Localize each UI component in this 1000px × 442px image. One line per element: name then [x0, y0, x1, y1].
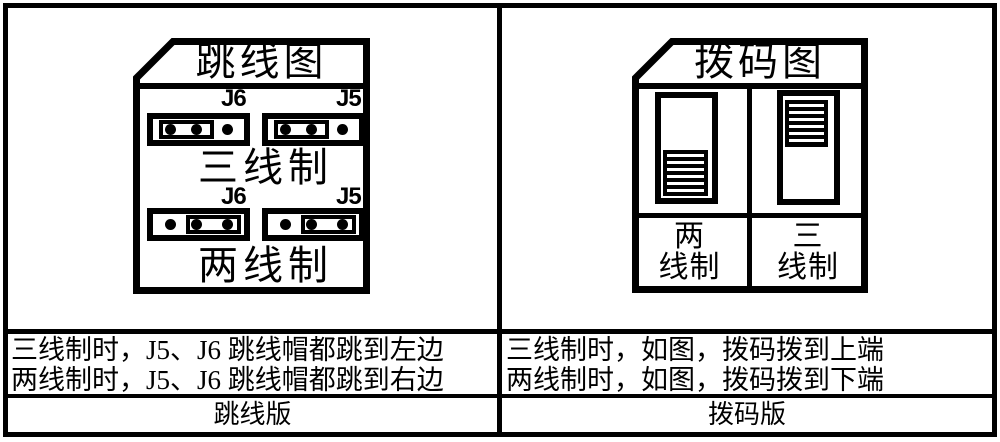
dip-two-wire-label: 两 线制 [632, 221, 747, 283]
jumper-note-line1: 三线制时，J5、J6 跳线帽都跳到左边 [11, 335, 444, 365]
jumper-j6-three-wire [147, 113, 250, 146]
dip-two-wire-label-line2: 线制 [632, 252, 747, 283]
layout-table: 跳线图 J6 J5 三线制 J6 J5 [3, 3, 997, 437]
jumper-version-label: 跳线版 [8, 400, 497, 430]
dip-note-line1: 三线制时，如图，拨码拨到上端 [506, 335, 884, 365]
jumper-cap-right-icon [301, 215, 356, 234]
jumper-j5-three-wire [262, 113, 365, 146]
dip-switch-three-wire-housing [777, 90, 840, 205]
jumper-board-notes: 三线制时，J5、J6 跳线帽都跳到左边 两线制时，J5、J6 跳线帽都跳到右边 [11, 335, 444, 395]
diagram-canvas: 跳线图 J6 J5 三线制 J6 J5 [0, 0, 1000, 442]
jumper-j6-label-three-wire: J6 [221, 86, 246, 111]
dip-three-wire-label-line2: 线制 [752, 252, 864, 283]
jumper-j6-label-two-wire: J6 [221, 184, 246, 209]
jumper-j6-two-wire [147, 208, 250, 241]
dip-switch-block-up-icon [785, 100, 828, 147]
two-wire-caption: 两线制 [147, 244, 384, 288]
dip-board-figure: 拨码图 两 线制 三 线制 [632, 38, 868, 293]
pin-dot [280, 219, 291, 230]
dip-board-notes: 三线制时，如图，拨码拨到上端 两线制时，如图，拨码拨到下端 [506, 335, 884, 395]
column-divider [497, 8, 502, 432]
dip-two-wire-label-line1: 两 [632, 221, 747, 252]
pin-dot [222, 124, 233, 135]
jumper-cap-right-icon [186, 215, 241, 234]
dip-three-wire-label: 三 线制 [752, 221, 864, 283]
jumper-cap-left-icon [274, 120, 329, 139]
jumper-note-line2: 两线制时，J5、J6 跳线帽都跳到右边 [11, 365, 444, 395]
jumper-cap-left-icon [159, 120, 214, 139]
jumper-j5-two-wire [262, 208, 365, 241]
row-divider-notes [8, 329, 992, 334]
dip-switch-block-down-icon [663, 150, 708, 196]
dip-three-wire-label-line1: 三 [752, 221, 864, 252]
jumper-j5-label-two-wire: J5 [336, 184, 361, 209]
dip-board-title: 拨码图 [652, 40, 868, 84]
dip-version-label: 拨码版 [502, 400, 992, 430]
pin-dot [165, 219, 176, 230]
dip-note-line2: 两线制时，如图，拨码拨到下端 [506, 365, 884, 395]
jumper-board-title: 跳线图 [153, 40, 370, 84]
pin-dot [337, 124, 348, 135]
jumper-board-figure: 跳线图 J6 J5 三线制 J6 J5 [133, 38, 370, 294]
dip-switch-two-wire-housing [655, 92, 718, 204]
jumper-j5-label-three-wire: J5 [336, 86, 361, 111]
